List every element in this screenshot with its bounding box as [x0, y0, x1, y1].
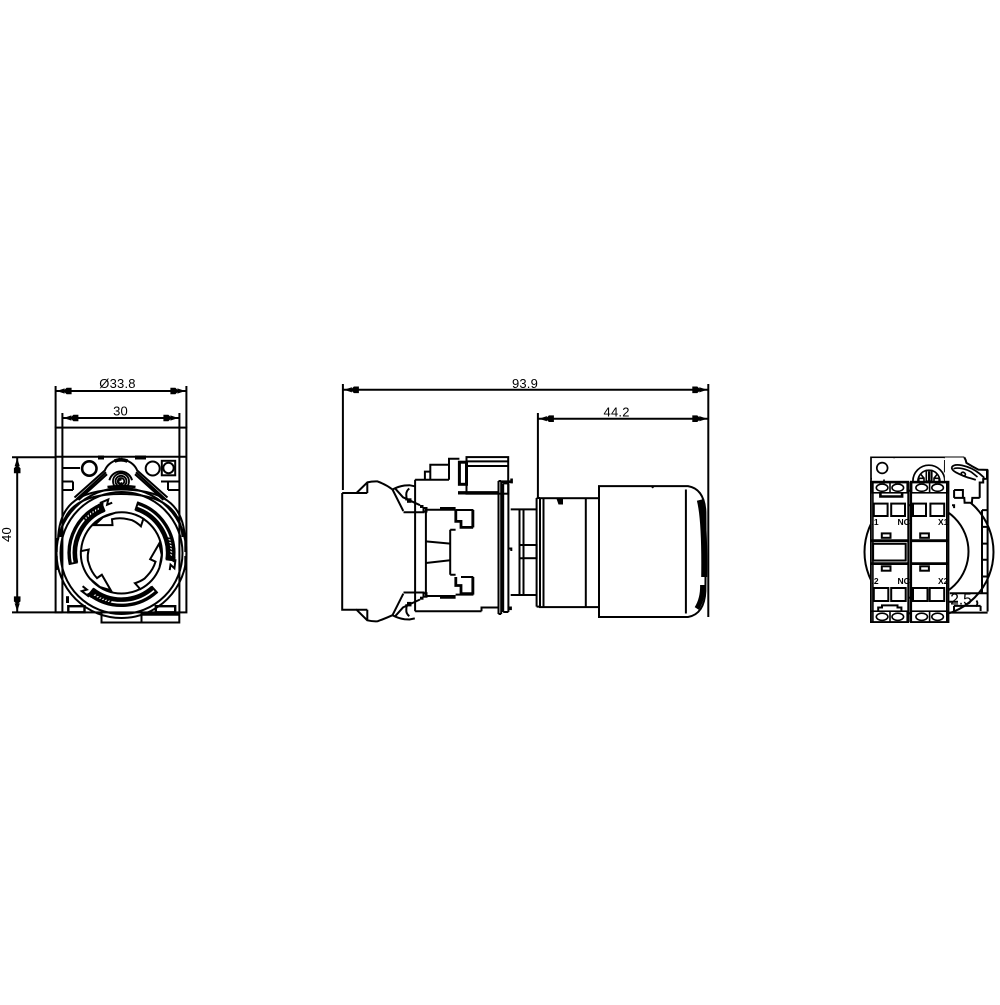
svg-text:X1: X1: [938, 517, 949, 527]
svg-text:40: 40: [0, 527, 14, 542]
svg-text:.1: .1: [872, 517, 879, 527]
svg-text:X2: X2: [938, 576, 949, 586]
svg-text:30: 30: [113, 404, 128, 419]
svg-text:Ø33.8: Ø33.8: [99, 376, 135, 391]
svg-text:44.2: 44.2: [604, 404, 630, 419]
svg-text:93.9: 93.9: [512, 376, 538, 391]
svg-text:2.5: 2.5: [950, 592, 972, 609]
svg-text:NC: NC: [898, 576, 910, 586]
svg-text:.2: .2: [872, 576, 879, 586]
svg-text:NC: NC: [898, 517, 910, 527]
